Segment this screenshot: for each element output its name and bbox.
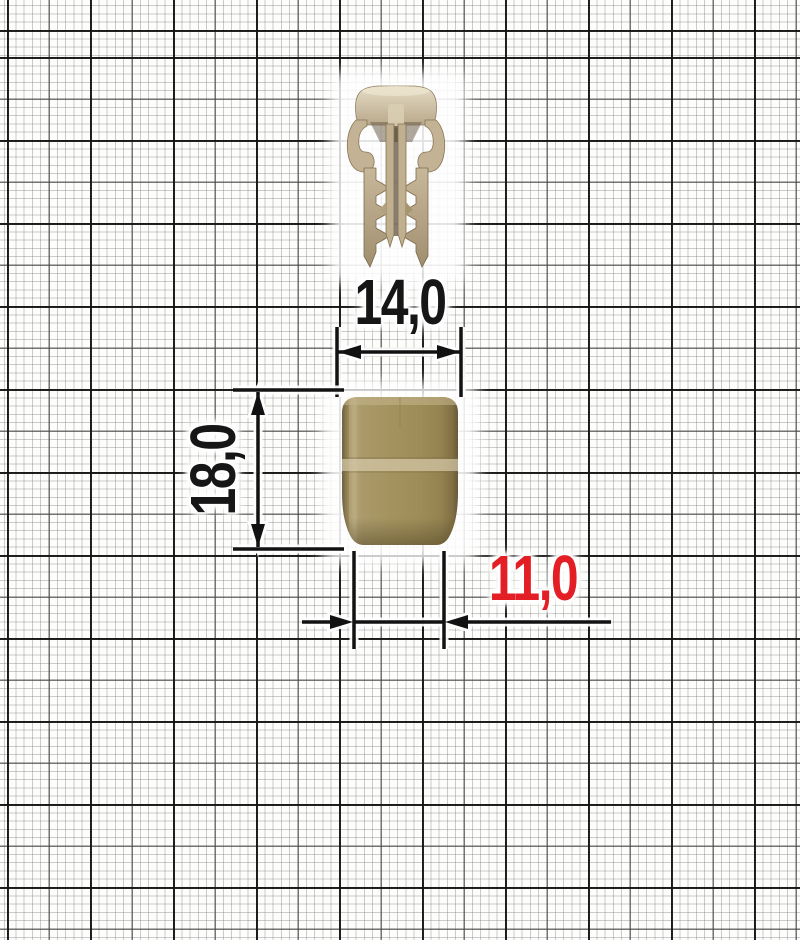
product-top-view-clip [347,86,444,267]
dim-label-top-width: 14,0 [355,270,446,334]
graph-paper-canvas: 14,0 18,0 11,0 [0,0,800,940]
dim-label-bottom-width: 11,0 [489,546,577,610]
dim-height [233,390,344,549]
product-side-view-cylinder [338,396,462,548]
technical-drawing [0,0,800,940]
dim-label-height: 18,0 [181,425,245,516]
